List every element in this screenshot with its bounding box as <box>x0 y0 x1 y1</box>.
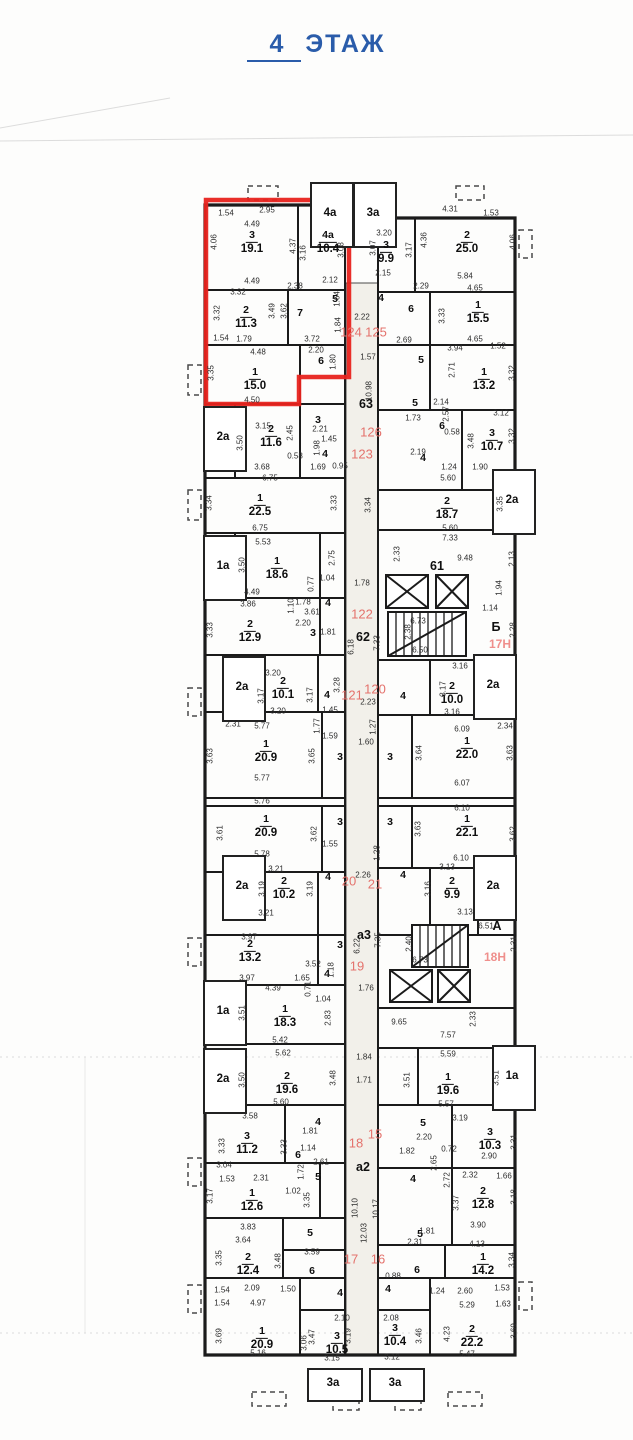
room-number: 1 <box>461 736 473 749</box>
dimension-label: 7.33 <box>373 635 382 651</box>
dimension-label: 3.61 <box>216 825 225 841</box>
dimension-label: 5.60 <box>273 1098 289 1107</box>
room-number: 5 <box>415 355 427 367</box>
dimension-label: 5.16 <box>250 1349 266 1358</box>
dimension-label: 3.20 <box>265 669 281 678</box>
dimension-label: 1.84 <box>356 1053 372 1062</box>
room-label: 4 <box>375 288 387 306</box>
dimension-label: 3.35 <box>303 1192 312 1208</box>
dimension-label: 5.60 <box>440 474 456 483</box>
room-number: 7 <box>294 308 306 320</box>
room-area: 12.4 <box>237 1264 259 1277</box>
dimension-label: 4.49 <box>244 220 260 229</box>
room-number: 4a <box>319 230 337 243</box>
dimension-label: 3.33 <box>330 495 339 511</box>
dimension-label: 1.80 <box>329 354 338 370</box>
room-number: 4 <box>322 872 334 884</box>
room-number: 1 <box>260 739 272 752</box>
room-number: 5 <box>312 1172 324 1184</box>
dimension-label: 7.35 <box>374 932 383 948</box>
dimension-label: 1.98 <box>313 440 322 456</box>
room-area: 13.2 <box>473 379 495 392</box>
dimension-label: 1.50 <box>280 1285 296 1294</box>
room-area: 19.6 <box>437 1084 459 1097</box>
dimension-label: 3.48 <box>274 1253 283 1269</box>
room-label: 4 <box>407 1169 419 1187</box>
room-area: 12.6 <box>241 1200 263 1213</box>
dimension-label: 3.83 <box>240 1223 256 1232</box>
room-area: 11.3 <box>235 317 257 330</box>
dimension-label: 4.97 <box>250 1299 266 1308</box>
dimension-label: 3.52 <box>305 960 321 969</box>
dimension-label: 3.06 <box>300 1335 309 1351</box>
dimension-label: 2.72 <box>443 1172 452 1188</box>
balcony-label: 2а <box>217 1073 230 1085</box>
dimension-label: 1.69 <box>310 463 326 472</box>
room-number: 1 <box>271 556 283 569</box>
dimension-label: 0.58 <box>287 452 303 461</box>
dimension-label: 2.60 <box>457 1287 473 1296</box>
dimension-label: 3.32 <box>213 305 222 321</box>
room-number: 3 <box>331 1331 343 1344</box>
room-number: 3 <box>484 1127 496 1140</box>
dimension-label: 10.10 <box>351 1198 360 1218</box>
room-area: 18.3 <box>274 1016 296 1029</box>
room-label: 222.2 <box>461 1319 483 1349</box>
dimension-label: 1.64 <box>333 291 342 307</box>
dimension-label: 2.38 <box>404 624 413 640</box>
dimension-label: 1.04 <box>319 574 335 583</box>
apartment-number: 17 <box>344 1252 358 1267</box>
room-number: 2 <box>240 305 252 318</box>
room-number: 3 <box>241 1131 253 1144</box>
dimension-label: 1.45 <box>321 435 337 444</box>
room-number: 4 <box>407 1174 419 1186</box>
room-label: 310.7 <box>481 423 503 453</box>
common-area-label: а2 <box>356 1160 370 1174</box>
dimension-label: 1.10 <box>287 598 296 614</box>
room-label: 225.0 <box>456 225 478 255</box>
dimension-label: 3.97 <box>241 933 257 942</box>
room-number: 6 <box>411 1265 423 1277</box>
balcony-label: 3а <box>367 207 380 219</box>
dimension-label: 5.77 <box>254 722 270 731</box>
room-number: 4 <box>382 1284 394 1296</box>
room-area: 18.6 <box>266 568 288 581</box>
dimension-label: 3.34 <box>364 497 373 513</box>
dimension-label: 4.48 <box>250 348 266 357</box>
dimension-label: 3.20 <box>270 707 286 716</box>
dimension-label: 5.29 <box>459 1301 475 1310</box>
dimension-label: 3.08 <box>337 242 346 258</box>
room-label: 3 <box>334 935 346 953</box>
dimension-label: 2.12 <box>322 276 338 285</box>
dimension-label: 2.31 <box>407 1238 423 1247</box>
dimension-label: 3.69 <box>215 1328 224 1344</box>
dimension-label: 2.33 <box>393 546 402 562</box>
room-label: 4 <box>397 686 409 704</box>
dimension-label: 4.36 <box>420 232 429 248</box>
room-label: 3 <box>334 747 346 765</box>
apartment-number: 121 <box>341 688 363 703</box>
dimension-label: 3.16 <box>444 708 460 717</box>
room-area: 14.2 <box>472 1264 494 1277</box>
dimension-label: 1.24 <box>429 1287 445 1296</box>
dimension-label: 2.20 <box>416 1133 432 1142</box>
dimension-label: 1.90 <box>472 463 488 472</box>
dimension-label: 1.02 <box>285 1187 301 1196</box>
room-area: 12.8 <box>472 1198 494 1211</box>
room-area: 10.7 <box>481 440 503 453</box>
room-label: 4 <box>322 593 334 611</box>
dimension-label: 2.65 <box>430 1155 439 1171</box>
dimension-label: 1.45 <box>322 706 338 715</box>
dimension-label: 3.20 <box>376 229 392 238</box>
dimension-label: 4.39 <box>265 984 281 993</box>
dimension-label: 0.95 <box>332 462 348 471</box>
dimension-label: 3.17 <box>306 687 315 703</box>
dimension-label: 3.33 <box>206 622 215 638</box>
dimension-label: 3.37 <box>452 1195 461 1211</box>
dimension-label: 1.27 <box>369 719 378 735</box>
dimension-label: 3.35 <box>496 496 505 512</box>
room-number: 3 <box>334 940 346 952</box>
room-label: 210.2 <box>273 871 295 901</box>
room-number: 4 <box>397 691 409 703</box>
room-number: 2 <box>441 496 453 509</box>
common-area-label: Б <box>492 620 501 634</box>
dimension-label: 3.13 <box>439 863 455 872</box>
dimension-label: 3.50 <box>238 557 247 573</box>
room-area: 19.6 <box>276 1083 298 1096</box>
room-number: 6 <box>405 304 417 316</box>
room-area: 13.2 <box>239 951 261 964</box>
dimension-label: 2.20 <box>295 619 311 628</box>
dimension-label: 10.17 <box>372 1199 381 1219</box>
room-number: 2 <box>446 876 458 889</box>
dimension-label: 3.21 <box>268 865 284 874</box>
dimension-label: 1.81 <box>320 628 336 637</box>
room-number: 5 <box>409 398 421 410</box>
room-area: 10.4 <box>384 1335 406 1348</box>
dimension-label: 2.90 <box>481 1152 497 1161</box>
room-number: 4 <box>321 690 333 702</box>
dimension-label: 3.69 <box>510 1323 519 1339</box>
stairwell-unit-number: 17Н <box>489 637 511 651</box>
dimension-label: 6.09 <box>454 725 470 734</box>
room-area: 18.7 <box>436 508 458 521</box>
dimension-label: 2.75 <box>328 550 337 566</box>
dimension-label: 3.48 <box>467 433 476 449</box>
dimension-label: 3.15 <box>255 422 271 431</box>
dimension-label: 3.33 <box>438 308 447 324</box>
dimension-label: 3.04 <box>216 1161 232 1170</box>
dimension-label: 1.24 <box>441 463 457 472</box>
dimension-label: 1.53 <box>494 1284 510 1293</box>
room-label: 122.5 <box>249 488 271 518</box>
dimension-label: 3.48 <box>329 1070 338 1086</box>
dimension-label: 5.84 <box>457 272 473 281</box>
dimension-label: 1.72 <box>297 1164 306 1180</box>
dimension-label: 7.33 <box>442 534 458 543</box>
room-number: 4 <box>375 293 387 305</box>
room-label: 6 <box>306 1261 318 1279</box>
room-label: 120.9 <box>255 734 277 764</box>
dimension-label: 3.19 <box>452 1114 468 1123</box>
dimension-label: 3.49 <box>268 303 277 319</box>
dimension-label: 6.50 <box>412 646 428 655</box>
common-area-label: 61 <box>430 559 444 573</box>
dimension-label: 3.33 <box>280 1139 289 1155</box>
dimension-label: 2.28 <box>509 622 518 638</box>
dimension-label: 2.95 <box>259 206 275 215</box>
dimension-label: 3.15 <box>324 1354 340 1363</box>
dimension-label: 2.57 <box>442 406 451 422</box>
dimension-label: 1.18 <box>327 962 336 978</box>
room-label: 120.9 <box>255 809 277 839</box>
dimension-label: 1.53 <box>483 209 499 218</box>
apartment-number: 123 <box>351 447 373 462</box>
dimension-label: 6.18 <box>347 639 356 655</box>
dimension-label: 4.06 <box>509 234 518 250</box>
dimension-label: 5.60 <box>442 524 458 533</box>
dimension-label: 7.57 <box>440 1031 456 1040</box>
dimension-label: 3.17 <box>439 681 448 697</box>
dimension-label: 6.75 <box>252 524 268 533</box>
dimension-label: 4.65 <box>467 284 483 293</box>
room-area: 19.1 <box>241 242 263 255</box>
dimension-label: 3.07 <box>369 240 378 256</box>
room-number: 3 <box>334 752 346 764</box>
room-number: 1 <box>461 814 473 827</box>
room-label: 122.0 <box>456 731 478 761</box>
dimension-label: 3.47 <box>308 1329 317 1345</box>
dimension-label: 2.71 <box>448 362 457 378</box>
dimension-label: 1.28 <box>373 845 382 861</box>
dimension-label: 3.35 <box>215 1250 224 1266</box>
dimension-label: 2.34 <box>497 722 513 731</box>
dimension-label: 3.19 <box>258 881 267 897</box>
dimension-label: 6.10 <box>454 804 470 813</box>
room-label: 120.9 <box>251 1321 273 1351</box>
balcony-label: 3а <box>389 1377 402 1389</box>
room-label: 6 <box>405 299 417 317</box>
room-label: 29.9 <box>444 871 460 901</box>
dimension-label: 3.64 <box>235 1236 251 1245</box>
dimension-label: 3.63 <box>414 821 423 837</box>
dimension-label: 5.62 <box>275 1049 291 1058</box>
dimension-label: 0.88 <box>385 1272 401 1281</box>
balcony-label: 4а <box>324 207 337 219</box>
apartment-number: 19 <box>350 959 364 974</box>
room-number: 2 <box>242 1252 254 1265</box>
dimension-label: 12.03 <box>360 1223 369 1243</box>
dimension-label: 6.10 <box>453 854 469 863</box>
room-area: 9.9 <box>444 888 460 901</box>
room-label: 39.9 <box>378 235 394 265</box>
dimension-label: 3.21 <box>258 909 274 918</box>
dimension-label: 3.51 <box>492 1070 501 1086</box>
room-label: 5 <box>304 1223 316 1241</box>
room-number: 2 <box>278 876 290 889</box>
room-number: 5 <box>417 1118 429 1130</box>
dimension-label: 1.60 <box>358 738 374 747</box>
room-area: 12.9 <box>239 631 261 644</box>
dimension-label: 3.32 <box>508 428 517 444</box>
dimension-label: 4.37 <box>289 238 298 254</box>
dimension-label: 3.62 <box>509 826 518 842</box>
room-number: 6 <box>306 1266 318 1278</box>
dimension-label: 3.50 <box>236 435 245 451</box>
dimension-label: 3.51 <box>403 1072 412 1088</box>
dimension-label: 3.50 <box>238 1072 247 1088</box>
dimension-label: 1.73 <box>405 414 421 423</box>
dimension-label: 2.22 <box>354 313 370 322</box>
dimension-label: 2.10 <box>334 1314 350 1323</box>
dimension-label: 1.76 <box>358 984 374 993</box>
room-label: 5 <box>312 1167 324 1185</box>
dimension-label: 3.94 <box>447 344 463 353</box>
dimension-label: 3.58 <box>242 1112 258 1121</box>
room-area: 11.2 <box>236 1143 258 1156</box>
apartment-number: 16 <box>371 1252 385 1267</box>
balcony-label: 2а <box>236 681 249 693</box>
room-number: 2 <box>461 230 473 243</box>
balcony-label: 3а <box>327 1377 340 1389</box>
dimension-label: 3.17 <box>405 242 414 258</box>
room-area: 20.9 <box>255 751 277 764</box>
dimension-label: 1.77 <box>313 718 322 734</box>
room-label: 5 <box>417 1113 429 1131</box>
room-label: 212.8 <box>472 1181 494 1211</box>
room-label: 5 <box>415 350 427 368</box>
room-number: 2 <box>244 619 256 632</box>
room-number: 1 <box>254 493 266 506</box>
dimension-label: 3.17 <box>257 688 266 704</box>
dimension-label: 3.65 <box>308 748 317 764</box>
balcony-label: 2а <box>487 679 500 691</box>
room-label: 310.3 <box>479 1122 501 1152</box>
dimension-label: 3.46 <box>415 1328 424 1344</box>
dimension-label: 2.32 <box>462 1171 478 1180</box>
dimension-label: 1.54 <box>213 334 229 343</box>
room-area: 22.1 <box>456 826 478 839</box>
dimension-label: 1.54 <box>214 1286 230 1295</box>
dimension-label: 5.57 <box>438 1100 454 1109</box>
dimension-label: 2.31 <box>510 936 519 952</box>
dimension-label: 1.14 <box>482 604 498 613</box>
room-number: 3 <box>334 817 346 829</box>
room-area: 25.0 <box>456 242 478 255</box>
room-number: 4 <box>334 1288 346 1300</box>
room-number: 4 <box>397 870 409 882</box>
room-number: 4 <box>322 598 334 610</box>
dimension-label: 3.62 <box>280 303 289 319</box>
apartment-number: 125 <box>365 325 387 340</box>
room-number: 6 <box>315 356 327 368</box>
room-area: 15.0 <box>244 379 266 392</box>
room-area: 10.3 <box>479 1139 501 1152</box>
room-area: 15.5 <box>467 312 489 325</box>
dimension-label: 1.54 <box>214 1299 230 1308</box>
apartment-number: 21 <box>368 877 382 892</box>
dimension-label: 6.75 <box>262 474 278 483</box>
common-area-label: 63 <box>359 397 373 411</box>
dimension-label: 3.63 <box>206 748 215 764</box>
dimension-label: 3.12 <box>493 409 509 418</box>
dimension-label: 4.31 <box>442 205 458 214</box>
dimension-label: 6.51 <box>478 922 494 931</box>
common-area-label: 62 <box>356 630 370 644</box>
balcony-label: 2а <box>217 431 230 443</box>
room-number: 1 <box>279 1004 291 1017</box>
dimension-label: 2.33 <box>469 1011 478 1027</box>
room-number: 5 <box>304 1228 316 1240</box>
room-label: 3 <box>384 747 396 765</box>
apartment-number: 126 <box>360 425 382 440</box>
dimension-label: 3.28 <box>333 677 342 693</box>
dimension-label: 4.13 <box>469 1240 485 1249</box>
room-number: 1 <box>472 300 484 313</box>
apartment-number: 18 <box>349 1136 363 1151</box>
room-label: 319.1 <box>241 225 263 255</box>
dimension-label: 3.16 <box>424 881 433 897</box>
dimension-label: 6.07 <box>454 779 470 788</box>
dimension-label: 3.97 <box>239 974 255 983</box>
room-area: 22.2 <box>461 1336 483 1349</box>
dimension-label: 1.57 <box>360 353 376 362</box>
dimension-label: 3.16 <box>299 245 308 261</box>
room-number: 1 <box>246 1188 258 1201</box>
room-number: 3 <box>384 817 396 829</box>
room-area: 20.9 <box>255 826 277 839</box>
room-label: 3 <box>384 812 396 830</box>
dimension-label: 3.86 <box>240 600 256 609</box>
dimension-label: 9.48 <box>457 554 473 563</box>
dimension-label: 3.16 <box>452 662 468 671</box>
room-label: 4 <box>397 865 409 883</box>
room-number: 2 <box>466 1324 478 1337</box>
apartment-number: 20 <box>342 874 356 889</box>
common-area-label: А <box>492 919 501 933</box>
dimension-label: 3.61 <box>304 608 320 617</box>
dimension-label: 6.73 <box>412 956 428 965</box>
dimension-label: 3.12 <box>384 1353 400 1362</box>
balcony-label: 1а <box>217 1005 230 1017</box>
room-label: 114.2 <box>472 1247 494 1277</box>
dimension-label: 2.31 <box>253 1174 269 1183</box>
room-label: 113.2 <box>473 362 495 392</box>
dimension-label: 5.59 <box>440 1050 456 1059</box>
room-label: 122.1 <box>456 809 478 839</box>
dimension-label: 4.65 <box>467 335 483 344</box>
dimension-label: 0.71 <box>304 981 313 997</box>
dimension-label: 5.77 <box>254 774 270 783</box>
scanned-floor-plan-page: 4ЭТАЖ <box>0 0 633 1440</box>
dimension-label: 3.35 <box>207 365 216 381</box>
room-label: 4 <box>334 1283 346 1301</box>
balcony-label: 2а <box>236 880 249 892</box>
room-area: 11.6 <box>260 436 282 449</box>
dimension-label: 3.72 <box>304 335 320 344</box>
stairwell-unit-number: 18Н <box>484 950 506 964</box>
room-label: 212.4 <box>237 1247 259 1277</box>
room-label: 3 <box>334 812 346 830</box>
dimension-label: 0.77 <box>307 576 316 592</box>
room-area: 10.1 <box>272 688 294 701</box>
dimension-label: 1.81 <box>419 1227 435 1236</box>
room-label: 4 <box>321 685 333 703</box>
